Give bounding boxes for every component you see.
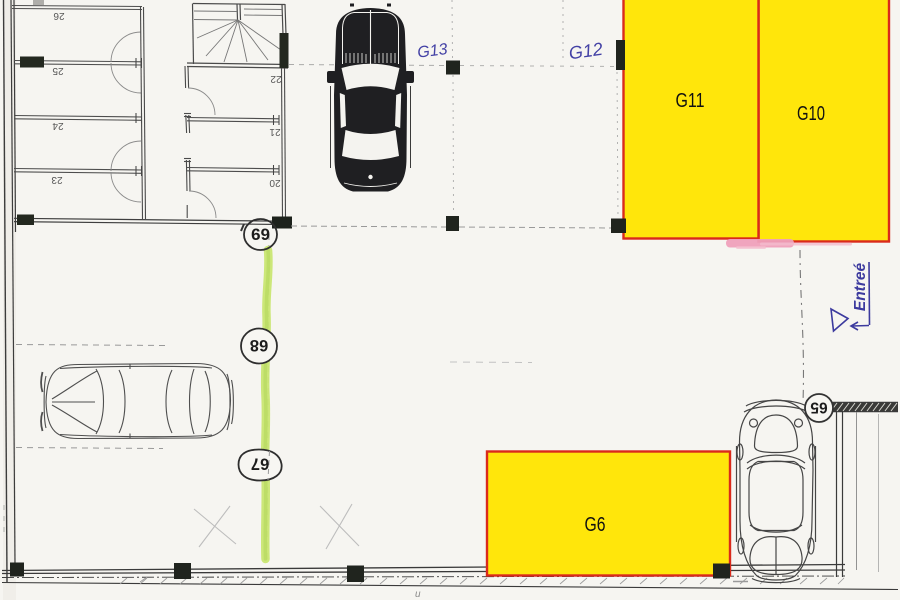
svg-text:26: 26 (53, 10, 65, 21)
svg-text:G6: G6 (585, 514, 606, 536)
svg-text:25: 25 (52, 65, 64, 76)
svg-text:u: u (415, 589, 421, 600)
svg-text:21: 21 (269, 126, 281, 137)
svg-text:20: 20 (269, 177, 281, 188)
svg-text:69: 69 (251, 225, 270, 244)
svg-text:24: 24 (52, 120, 64, 131)
svg-text:G11: G11 (676, 90, 705, 112)
svg-text:22: 22 (270, 73, 282, 84)
svg-text:68: 68 (250, 336, 268, 354)
svg-text:23: 23 (51, 174, 63, 185)
svg-text:67: 67 (251, 455, 269, 473)
svg-text:65: 65 (810, 399, 828, 416)
svg-text:G10: G10 (797, 103, 825, 125)
svg-text:Entreé: Entreé (852, 263, 869, 312)
